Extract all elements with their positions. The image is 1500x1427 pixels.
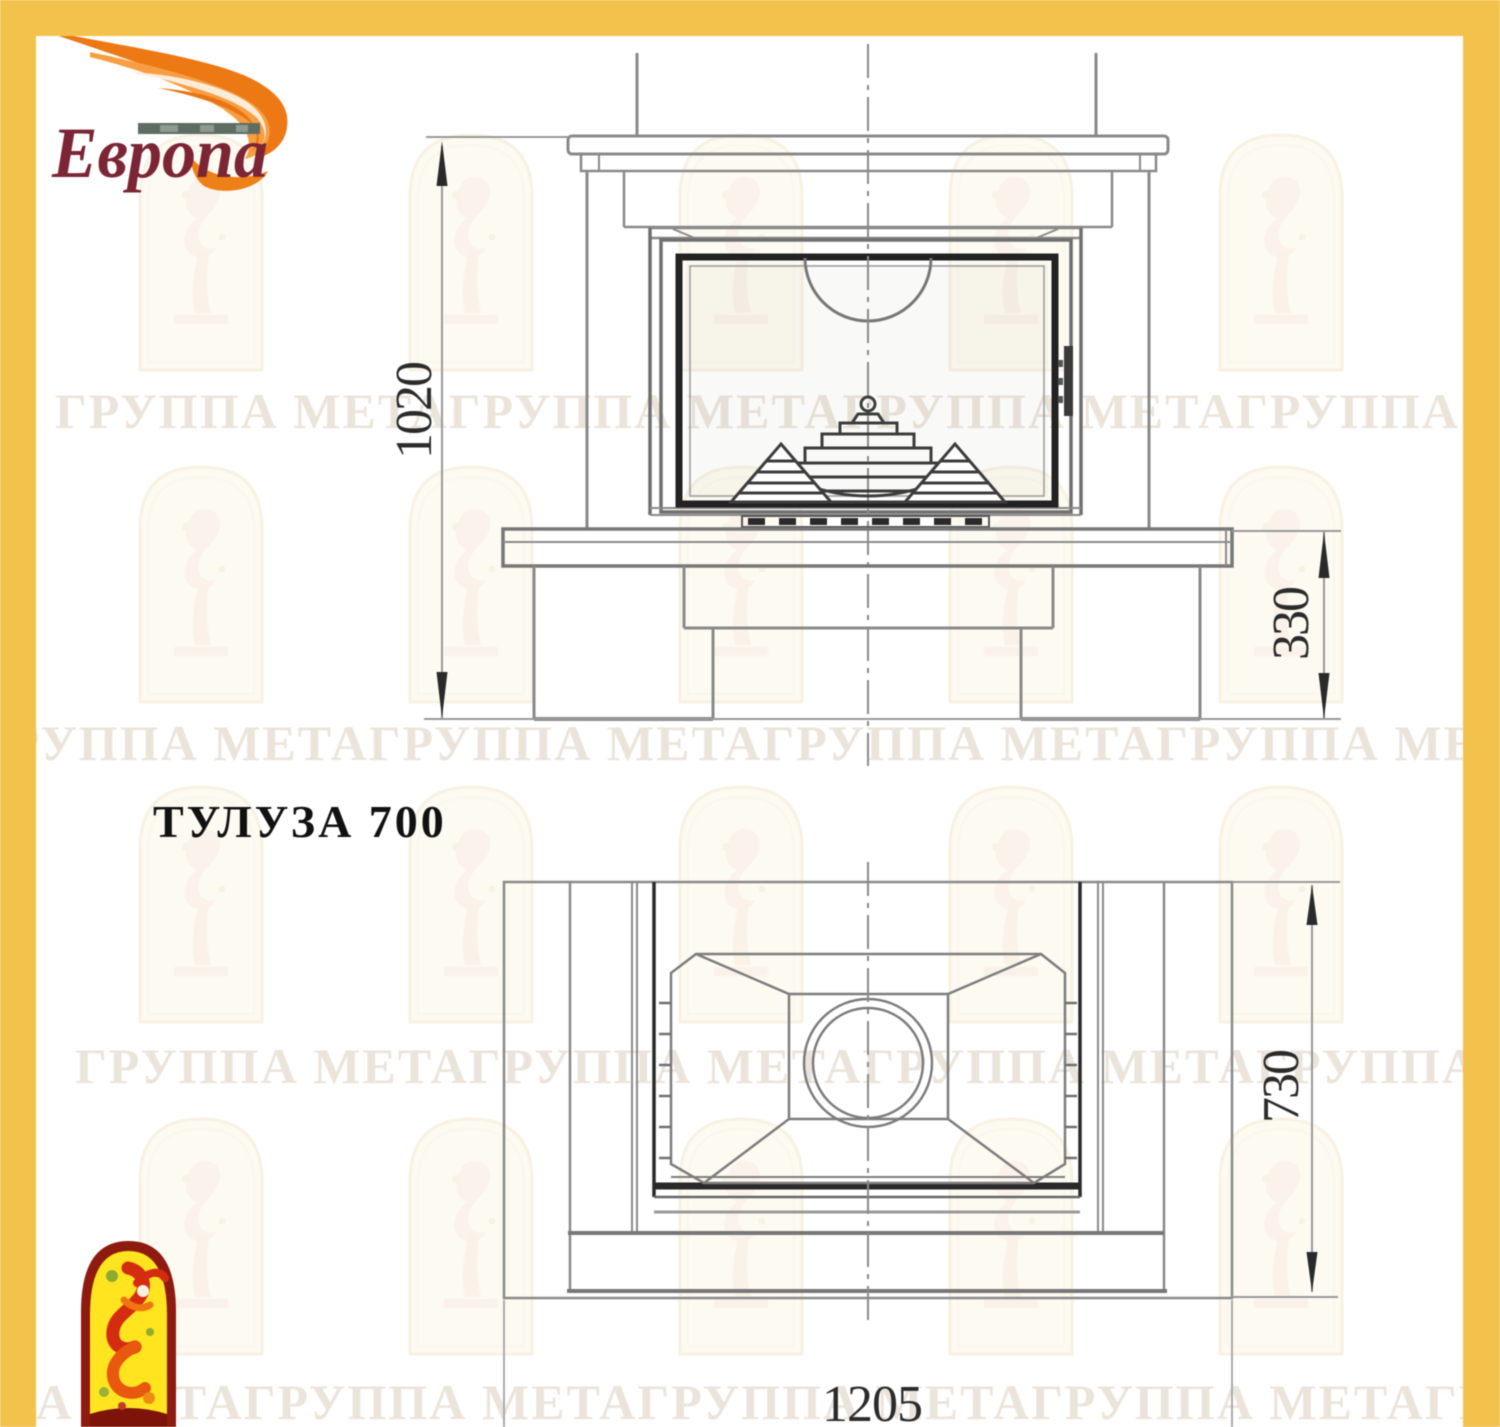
svg-text:ГРУППА МЕТАГРУППА МЕТАГРУППА М: ГРУППА МЕТАГРУППА МЕТАГРУППА МЕТАГРУППА … xyxy=(0,715,1500,771)
svg-text:1020: 1020 xyxy=(386,362,443,459)
svg-text:330: 330 xyxy=(1263,587,1320,660)
svg-text:ГРУППА МЕТАГРУППА МЕТАГРУППА М: ГРУППА МЕТАГРУППА МЕТАГРУППА МЕТАГРУППА … xyxy=(0,1374,1500,1427)
svg-text:Европа: Европа xyxy=(51,113,268,193)
svg-text:ТУЛУЗА 700: ТУЛУЗА 700 xyxy=(153,796,447,847)
svg-text:1205: 1205 xyxy=(822,1376,922,1427)
svg-text:730: 730 xyxy=(1253,1050,1310,1123)
